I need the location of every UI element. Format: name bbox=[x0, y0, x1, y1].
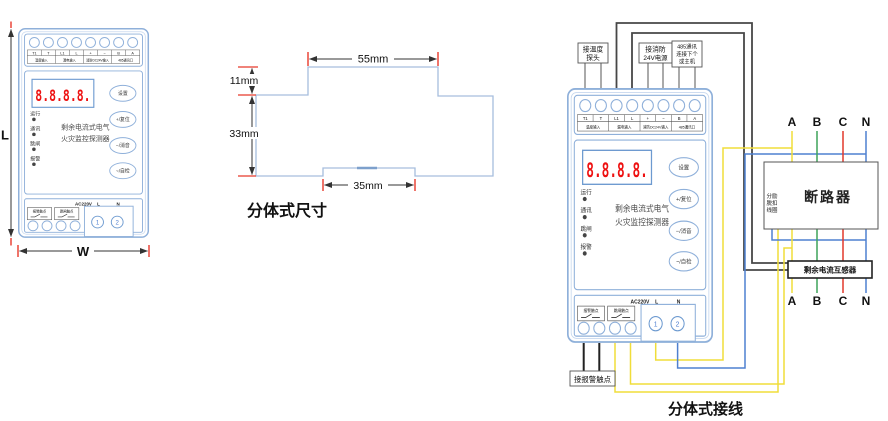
phase-a-top-label: A bbox=[788, 115, 797, 129]
alarm-contact-callout-label: 接报警触点 bbox=[574, 375, 612, 384]
temp-probe-line1: 接温度 bbox=[583, 45, 604, 54]
diagram-canvas: T1 T L1 L + − B A 温度输入 漏电输入 消防DC24V输入 48… bbox=[0, 0, 888, 421]
shunt-coil-line3: 线圈 bbox=[766, 206, 778, 214]
phase-c-bottom-label: C bbox=[839, 294, 848, 308]
fire-24v-line2: 24V电源 bbox=[643, 53, 668, 62]
rs485-line2: 连接下个 bbox=[676, 50, 698, 58]
step-height-dim-label: 11mm bbox=[230, 75, 259, 87]
shunt-coil-line1: 分励 bbox=[766, 192, 778, 200]
shunt-coil-label: 分励 脱扣 线圈 bbox=[766, 192, 778, 214]
diagram-sheet: T1 T L1 L + − B A 温度输入 漏电输入 消防DC24V输入 48… bbox=[0, 0, 888, 421]
wiring-caption: 分体式接线 bbox=[668, 400, 743, 418]
phase-n-bottom-label: N bbox=[862, 294, 871, 308]
body-height-dim-label: 33mm bbox=[229, 128, 258, 140]
phase-a-bottom-label: A bbox=[788, 294, 797, 308]
height-dim-label: L bbox=[1, 128, 9, 143]
notch-width-dim-label: 35mm bbox=[353, 180, 382, 192]
front-view: L W bbox=[0, 22, 149, 260]
phase-b-bottom-label: B bbox=[813, 294, 822, 308]
rs485-line3: 或主机 bbox=[679, 58, 696, 66]
rs485-line1: 485通讯 bbox=[677, 43, 697, 51]
current-transformer-label: 剩余电流互感器 bbox=[804, 265, 857, 275]
profile-caption: 分体式尺寸 bbox=[247, 201, 327, 220]
circuit-breaker-label: 断路器 bbox=[804, 189, 852, 205]
temp-probe-line2: 探头 bbox=[586, 53, 600, 62]
fire-24v-line1: 接消防 bbox=[645, 45, 666, 54]
shunt-coil-line2: 脱扣 bbox=[766, 199, 777, 207]
top-width-dim-label: 55mm bbox=[358, 54, 389, 66]
width-dim-label: W bbox=[77, 244, 90, 259]
phase-n-top-label: N bbox=[862, 115, 871, 129]
phase-c-top-label: C bbox=[839, 115, 848, 129]
phase-b-top-label: B bbox=[813, 115, 822, 129]
